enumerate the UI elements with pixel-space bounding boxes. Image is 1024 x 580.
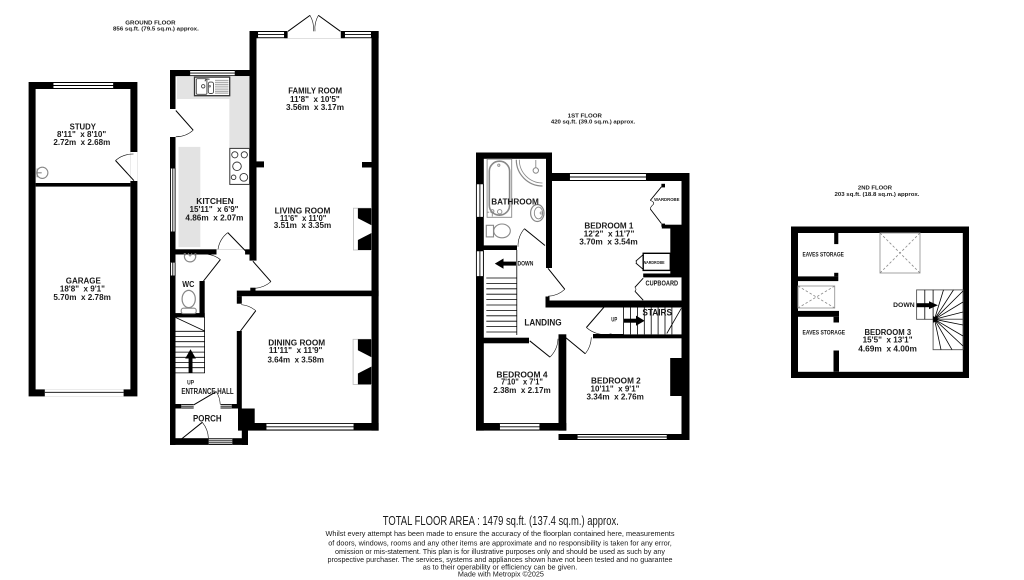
svg-text:WC: WC xyxy=(182,280,194,289)
svg-text:203 sq.ft. (18.8 sq.m.) approx: 203 sq.ft. (18.8 sq.m.) approx. xyxy=(835,192,920,198)
svg-text:WARDROBE: WARDROBE xyxy=(654,197,679,202)
svg-text:TOTAL FLOOR AREA : 1479 sq.ft.: TOTAL FLOOR AREA : 1479 sq.ft. (137.4 sq… xyxy=(383,513,619,528)
svg-text:LANDING: LANDING xyxy=(524,318,561,329)
svg-text:CUPBOARD: CUPBOARD xyxy=(646,279,679,288)
svg-text:2.38m x 2.17m: 2.38m x 2.17m xyxy=(493,386,550,395)
svg-text:UP: UP xyxy=(611,318,617,324)
svg-text:4.86m x 2.07m: 4.86m x 2.07m xyxy=(185,213,243,222)
svg-text:420 sq.ft. (39.0 sq.m.) approx: 420 sq.ft. (39.0 sq.m.) approx. xyxy=(551,120,636,126)
svg-text:11'11" x 11'9": 11'11" x 11'9" xyxy=(269,346,323,355)
svg-text:1ST FLOOR: 1ST FLOOR xyxy=(568,114,603,120)
svg-text:DOWN: DOWN xyxy=(517,262,533,268)
svg-text:UP: UP xyxy=(187,381,194,387)
svg-text:BATHROOM: BATHROOM xyxy=(491,197,539,206)
svg-text:3.34m x 2.76m: 3.34m x 2.76m xyxy=(587,393,644,402)
svg-text:EAVES STORAGE: EAVES STORAGE xyxy=(803,330,846,336)
svg-text:15'5" x 13'1": 15'5" x 13'1" xyxy=(863,336,913,345)
svg-text:STAIRS: STAIRS xyxy=(642,308,672,319)
svg-text:3.51m x 3.35m: 3.51m x 3.35m xyxy=(274,221,331,230)
svg-text:3.64m x 3.58m: 3.64m x 3.58m xyxy=(267,355,324,364)
svg-text:856 sq.ft. (79.5 sq.m.) approx: 856 sq.ft. (79.5 sq.m.) approx. xyxy=(113,27,199,33)
svg-text:3.70m x 3.54m: 3.70m x 3.54m xyxy=(579,238,637,247)
svg-text:5.70m x 2.78m: 5.70m x 2.78m xyxy=(53,293,111,302)
svg-text:EAVES STORAGE: EAVES STORAGE xyxy=(803,253,844,259)
svg-text:Whilst every attempt has been: Whilst every attempt has been made to en… xyxy=(326,529,675,538)
svg-text:4.69m x 4.00m: 4.69m x 4.00m xyxy=(858,345,917,354)
svg-text:PORCH: PORCH xyxy=(193,414,222,425)
svg-text:WARDROBE: WARDROBE xyxy=(643,260,665,265)
svg-text:2ND FLOOR: 2ND FLOOR xyxy=(858,186,893,192)
svg-text:Made with Metropix ©2025: Made with Metropix ©2025 xyxy=(458,570,544,579)
svg-text:DOWN: DOWN xyxy=(893,303,915,309)
svg-text:ENTRANCE HALL: ENTRANCE HALL xyxy=(181,387,233,396)
svg-text:GROUND FLOOR: GROUND FLOOR xyxy=(125,20,176,26)
svg-text:2.72m x 2.68m: 2.72m x 2.68m xyxy=(53,138,110,147)
svg-text:3.56m x 3.17m: 3.56m x 3.17m xyxy=(286,103,344,112)
